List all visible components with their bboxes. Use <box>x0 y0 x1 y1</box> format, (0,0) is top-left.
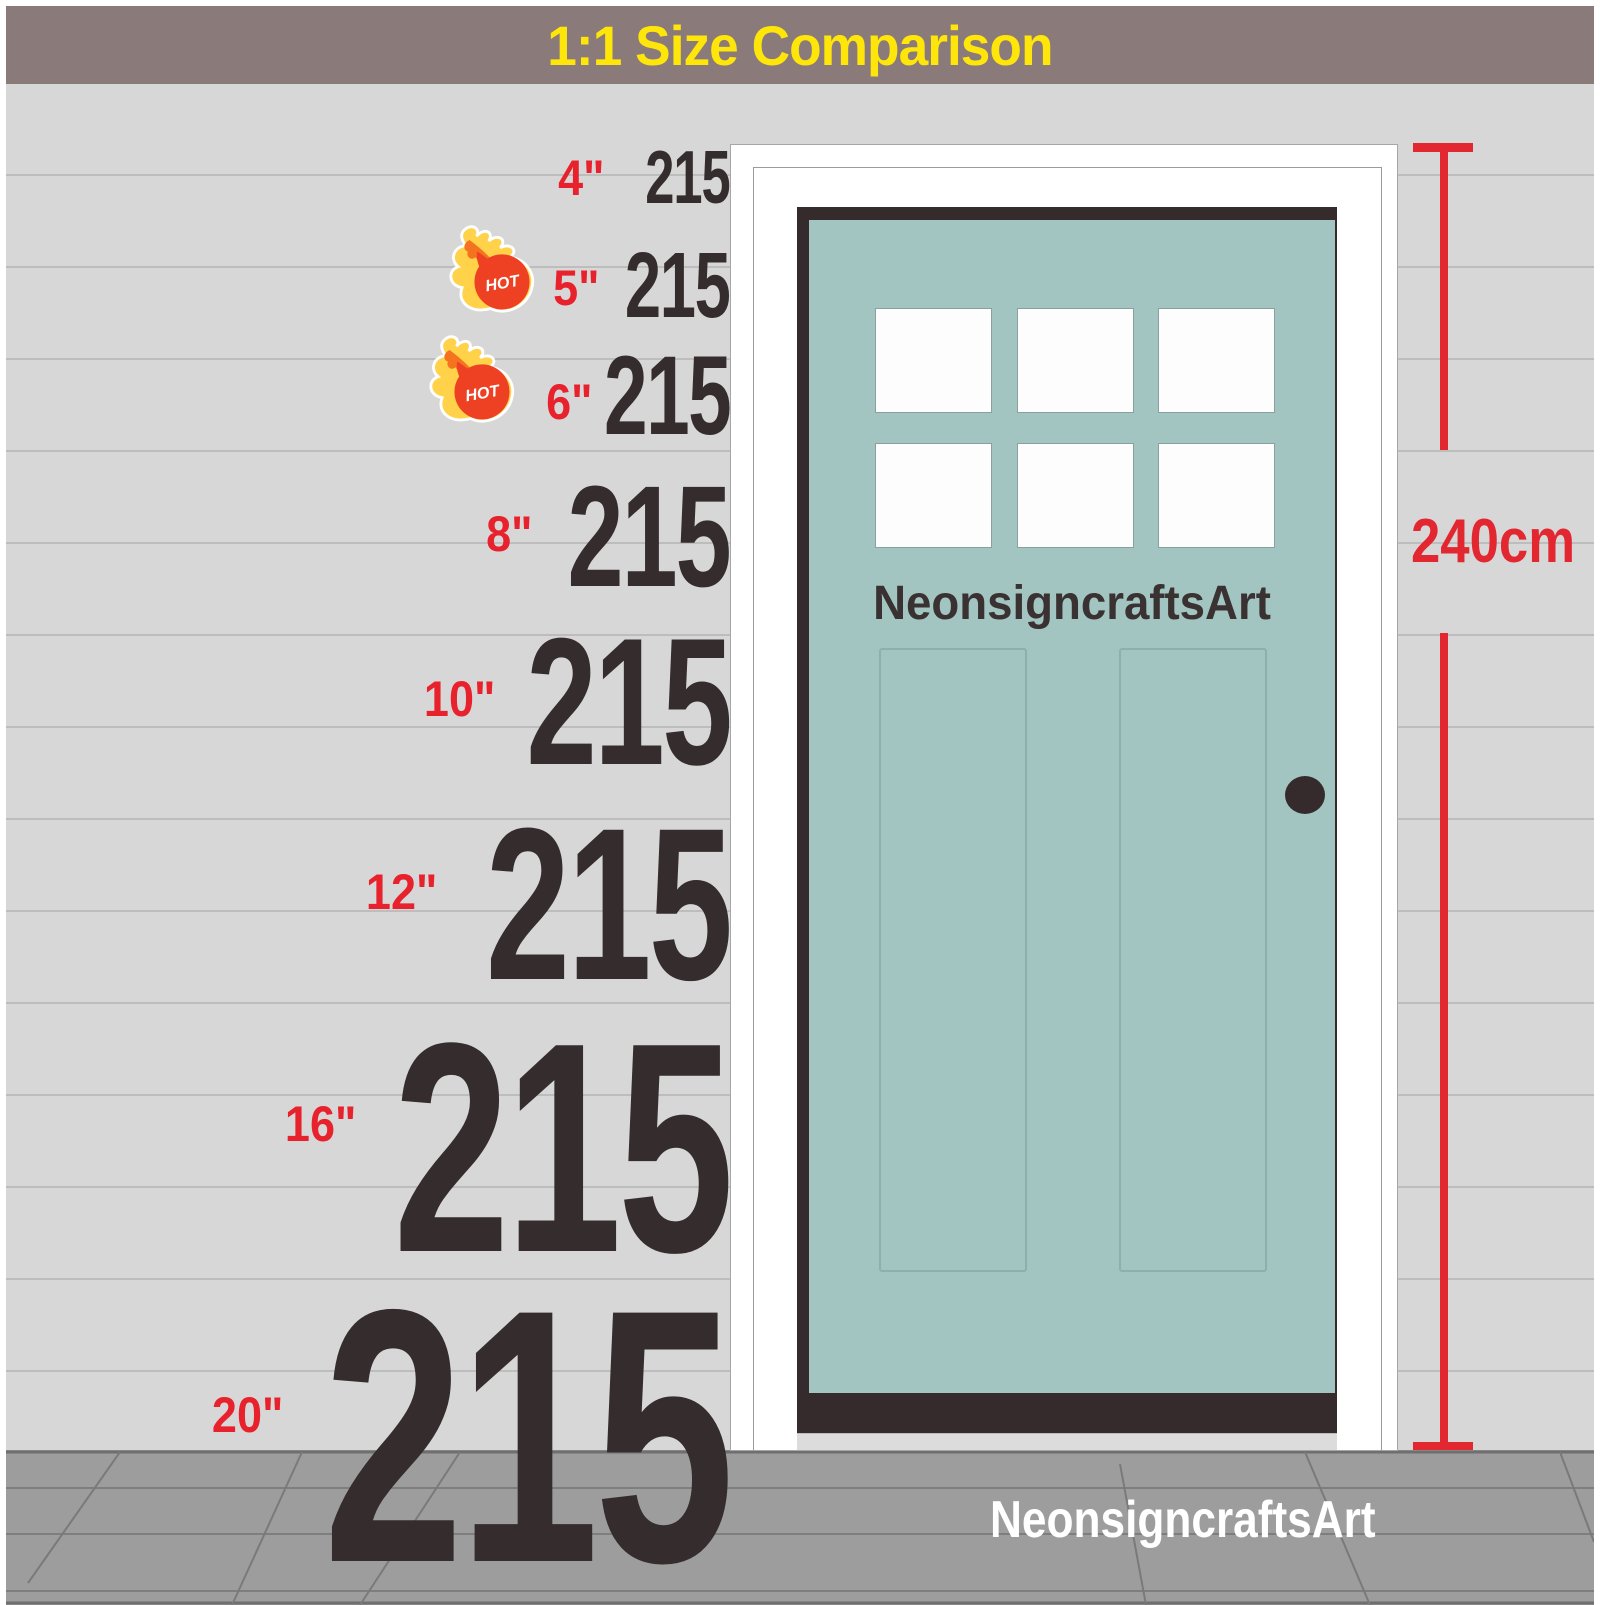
size-label-4in: 4" <box>559 153 605 203</box>
measure-bottom-cap <box>1413 1442 1473 1450</box>
door-window-pane <box>875 443 992 548</box>
page-edge-top <box>0 0 1600 6</box>
door-window-pane <box>1017 443 1134 548</box>
door-window-pane <box>1017 308 1134 413</box>
size-number-5in: 215 <box>625 239 730 332</box>
door-panel-right <box>1119 648 1267 1272</box>
door-window-pane <box>1158 308 1275 413</box>
door-threshold <box>797 1433 1337 1450</box>
size-number-8in: 215 <box>568 465 730 609</box>
size-number-10in: 215 <box>526 612 730 793</box>
hot-flame-icon: HOT <box>445 223 540 318</box>
measure-height-label: 240cm <box>1411 511 1575 573</box>
size-label-6in: 6" <box>547 377 593 427</box>
size-label-5in: 5" <box>554 263 600 313</box>
hot-flame-icon: HOT <box>425 333 520 428</box>
page-edge-left <box>0 0 6 1450</box>
size-comparison-graphic: NeonsigncraftsArt 240cm 4" 215 5" 215 6"… <box>0 0 1600 1605</box>
header-banner: 1:1 Size Comparison <box>6 6 1594 84</box>
door-brand-text: NeonsigncraftsArt <box>822 576 1322 631</box>
door-window-pane <box>1158 443 1275 548</box>
measure-line-upper <box>1440 143 1448 450</box>
floor-watermark-text: NeonsigncraftsArt <box>990 1494 1376 1546</box>
size-label-12in: 12" <box>366 867 437 917</box>
size-label-20in: 20" <box>212 1390 283 1440</box>
door-knob <box>1285 776 1325 814</box>
size-label-10in: 10" <box>424 674 495 724</box>
door-panel-left <box>879 648 1027 1272</box>
banner-title: 1:1 Size Comparison <box>547 13 1052 78</box>
door-window-pane <box>875 308 992 413</box>
measure-line-lower <box>1440 633 1448 1450</box>
size-number-20in: 215 <box>324 1256 730 1605</box>
size-label-8in: 8" <box>487 509 533 559</box>
size-number-4in: 215 <box>646 140 730 215</box>
size-number-6in: 215 <box>604 340 730 452</box>
page-edge-right <box>1594 0 1600 1450</box>
size-label-16in: 16" <box>285 1099 356 1149</box>
